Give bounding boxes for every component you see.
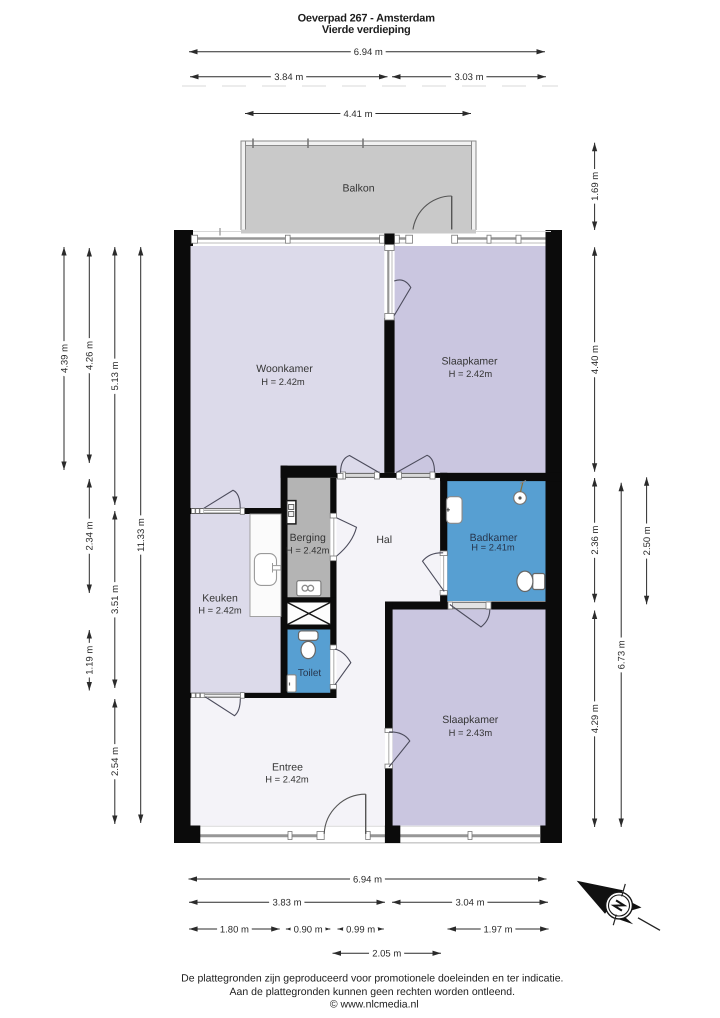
svg-text:Balkon: Balkon <box>342 183 374 195</box>
svg-text:0.99 m: 0.99 m <box>346 924 375 935</box>
svg-text:2.05 m: 2.05 m <box>372 949 401 960</box>
svg-text:6.94 m: 6.94 m <box>353 874 382 885</box>
svg-text:3.04 m: 3.04 m <box>455 898 484 909</box>
svg-text:H = 2.42m: H = 2.42m <box>286 544 330 555</box>
svg-text:6.94 m: 6.94 m <box>354 47 383 58</box>
svg-text:Toilet: Toilet <box>298 668 322 679</box>
svg-text:H = 2.41m: H = 2.41m <box>471 542 515 553</box>
svg-text:1.97 m: 1.97 m <box>484 924 513 935</box>
svg-text:Aan de plattegronden kunnen ge: Aan de plattegronden kunnen geen rechten… <box>230 986 515 998</box>
svg-text:H = 2.42m: H = 2.42m <box>449 368 493 379</box>
svg-text:Woonkamer: Woonkamer <box>256 363 313 375</box>
svg-text:De plattegronden zijn geproduc: De plattegronden zijn geproduceerd voor … <box>181 973 563 985</box>
svg-text:5.13 m: 5.13 m <box>110 361 121 390</box>
svg-text:H = 2.42m: H = 2.42m <box>198 605 242 616</box>
svg-text:Berging: Berging <box>290 532 326 544</box>
svg-text:3.83 m: 3.83 m <box>272 898 301 909</box>
svg-text:4.40 m: 4.40 m <box>590 345 601 374</box>
svg-text:4.41 m: 4.41 m <box>343 109 372 120</box>
svg-text:Keuken: Keuken <box>202 592 238 604</box>
svg-text:4.26 m: 4.26 m <box>85 341 96 370</box>
svg-text:Oeverpad 267 - Amsterdam: Oeverpad 267 - Amsterdam <box>298 12 436 24</box>
svg-text:1.19 m: 1.19 m <box>85 646 96 675</box>
svg-text:Slaapkamer: Slaapkamer <box>441 356 498 368</box>
svg-text:2.36 m: 2.36 m <box>590 526 601 555</box>
svg-text:2.34 m: 2.34 m <box>85 521 96 550</box>
svg-text:H = 2.42m: H = 2.42m <box>261 376 305 387</box>
svg-text:3.84 m: 3.84 m <box>274 72 303 83</box>
svg-text:Hal: Hal <box>376 534 392 546</box>
svg-text:Slaapkamer: Slaapkamer <box>442 714 499 726</box>
svg-text:1.69 m: 1.69 m <box>590 172 601 201</box>
svg-text:1.80 m: 1.80 m <box>220 924 249 935</box>
svg-text:2.54 m: 2.54 m <box>110 747 121 776</box>
svg-text:3.03 m: 3.03 m <box>454 72 483 83</box>
svg-text:11.33 m: 11.33 m <box>136 518 147 552</box>
svg-text:3.51 m: 3.51 m <box>110 585 121 614</box>
svg-text:4.39 m: 4.39 m <box>59 344 70 373</box>
svg-text:4.29 m: 4.29 m <box>590 704 601 733</box>
svg-text:Entree: Entree <box>272 762 303 774</box>
svg-text:0.90 m: 0.90 m <box>294 924 323 935</box>
svg-text:H = 2.43m: H = 2.43m <box>449 727 493 738</box>
svg-text:Vierde verdieping: Vierde verdieping <box>322 24 411 36</box>
svg-text:2.50 m: 2.50 m <box>642 526 653 555</box>
svg-text:© www.nlcmedia.nl: © www.nlcmedia.nl <box>330 999 419 1011</box>
svg-text:H = 2.42m: H = 2.42m <box>265 773 309 784</box>
svg-text:6.73 m: 6.73 m <box>617 640 628 669</box>
